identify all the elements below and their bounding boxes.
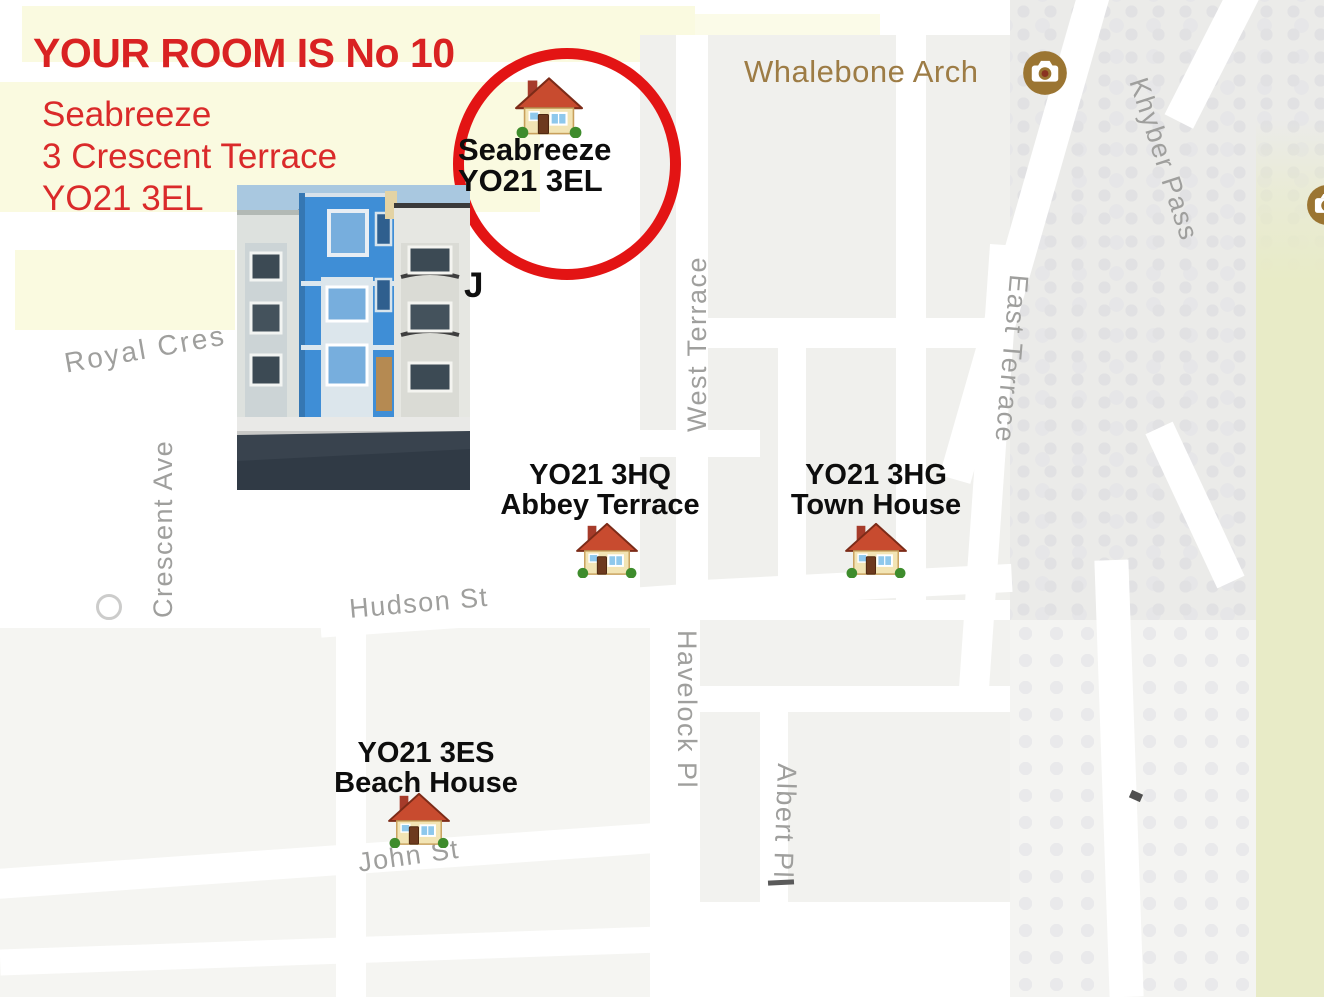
- room-instruction-heading: YOUR ROOM IS No 10: [33, 30, 455, 77]
- marker-label: YO21 3HQ: [488, 460, 712, 490]
- marker-town-house: YO21 3HG Town House: [764, 460, 988, 520]
- address-lines: Seabreeze 3 Crescent Terrace YO21 3EL: [42, 94, 337, 220]
- marker-label: YO21 3ES: [314, 738, 538, 768]
- house-icon-town-house: [845, 520, 907, 578]
- marker-seabreeze: Seabreeze YO21 3EL: [458, 134, 611, 196]
- road: [640, 430, 760, 457]
- poi-label-whalebone-arch: Whalebone Arch: [744, 54, 978, 90]
- house-icon-seabreeze: [515, 74, 583, 138]
- house-icon-beach-house: [388, 790, 450, 848]
- road: [708, 318, 1010, 348]
- street-label-west-terrace: West Terrace: [682, 256, 713, 432]
- house-icon-abbey-terrace: [576, 520, 638, 578]
- street-label-crescent-ave: Crescent Ave: [148, 440, 179, 618]
- marker-label: Seabreeze: [458, 134, 611, 165]
- marker-abbey-terrace: YO21 3HQ Abbey Terrace: [488, 460, 712, 520]
- map: Royal Cres Crescent Ave West Terrace Eas…: [0, 0, 1324, 997]
- roundabout-marker: [96, 594, 122, 620]
- camera-icon: [1022, 50, 1068, 96]
- terrain-green-area: [1256, 120, 1324, 997]
- marker-label: YO21 3HG: [764, 460, 988, 490]
- marker-beach-house: YO21 3ES Beach House: [314, 738, 538, 798]
- marker-label: Town House: [764, 490, 988, 520]
- marker-label: Abbey Terrace: [488, 490, 712, 520]
- landuse-area: [15, 250, 235, 330]
- marker-label: YO21 3EL: [458, 165, 611, 196]
- camera-icon: [1306, 184, 1324, 226]
- street-label-albert-pl: Albert Pl: [767, 763, 802, 880]
- street-label-havelock-pl: Havelock Pl: [671, 630, 702, 789]
- partial-postcode-label: J: [464, 266, 483, 306]
- guesthouse-photo: [237, 185, 470, 490]
